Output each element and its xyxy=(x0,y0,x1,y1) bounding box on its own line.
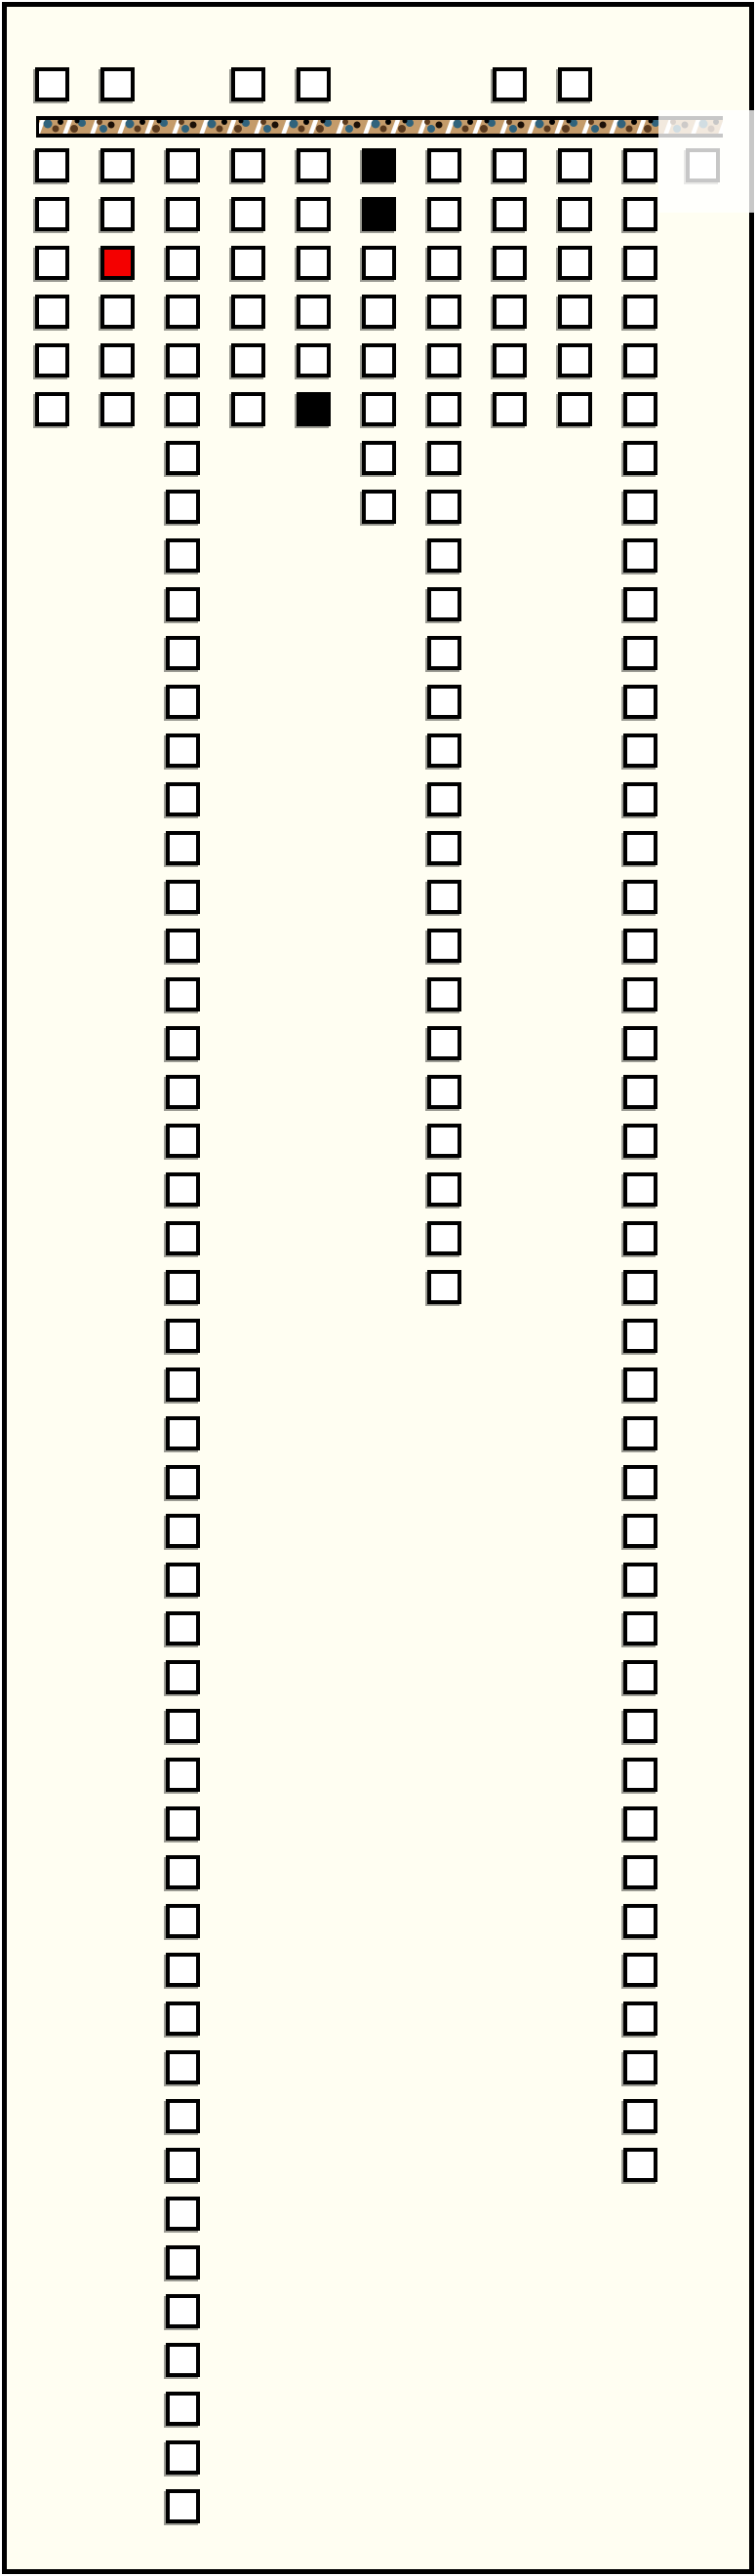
checkbox-cell[interactable] xyxy=(623,636,657,670)
checkbox-cell[interactable] xyxy=(623,538,657,573)
checkbox-cell[interactable] xyxy=(623,490,657,524)
checkbox-cell[interactable] xyxy=(623,1904,657,1938)
checkbox-cell[interactable] xyxy=(166,1416,200,1450)
checkbox-cell[interactable] xyxy=(166,636,200,670)
checkbox-cell[interactable] xyxy=(427,490,461,524)
checkbox-cell[interactable] xyxy=(623,2001,657,2036)
checkbox-cell[interactable] xyxy=(166,197,200,231)
checkbox-cell[interactable] xyxy=(166,782,200,816)
checkbox-cell[interactable] xyxy=(166,685,200,719)
checkbox-cell[interactable] xyxy=(623,1026,657,1060)
checkbox-cell[interactable] xyxy=(166,343,200,377)
checkbox-cell[interactable] xyxy=(427,197,461,231)
checkbox-cell[interactable] xyxy=(35,295,69,329)
checkbox-cell[interactable] xyxy=(427,636,461,670)
checkbox-cell[interactable] xyxy=(558,197,592,231)
checkbox-cell[interactable] xyxy=(623,929,657,963)
checkbox-cell[interactable] xyxy=(623,1611,657,1645)
checkbox-cell[interactable] xyxy=(427,782,461,816)
checkbox-cell[interactable] xyxy=(623,1855,657,1889)
checkbox-cell[interactable] xyxy=(493,392,527,426)
checkbox-cell[interactable] xyxy=(166,2099,200,2133)
checkbox-cell[interactable] xyxy=(231,295,265,329)
checkbox-cell[interactable] xyxy=(623,1953,657,1987)
checkbox-cell[interactable] xyxy=(427,685,461,719)
checkbox-cell[interactable] xyxy=(35,343,69,377)
checkbox-cell[interactable] xyxy=(623,197,657,231)
checkbox-cell[interactable] xyxy=(166,2392,200,2426)
checkbox-cell[interactable] xyxy=(166,1172,200,1207)
checkbox-cell[interactable] xyxy=(166,1611,200,1645)
checkbox-cell[interactable] xyxy=(427,441,461,475)
checkbox-cell[interactable] xyxy=(623,343,657,377)
checkbox-cell[interactable] xyxy=(231,392,265,426)
checkbox-cell[interactable] xyxy=(623,1221,657,1255)
checkbox-cell[interactable] xyxy=(623,1416,657,1450)
checkbox-cell[interactable] xyxy=(166,880,200,914)
checkbox-cell[interactable] xyxy=(623,1319,657,1353)
checkbox-cell[interactable] xyxy=(166,2440,200,2475)
checkbox-cell-filled[interactable] xyxy=(362,148,396,182)
checkbox-cell[interactable] xyxy=(623,246,657,280)
checkbox-cell[interactable] xyxy=(427,733,461,768)
checkbox-cell[interactable] xyxy=(166,490,200,524)
checkbox-cell[interactable] xyxy=(493,343,527,377)
checkbox-cell[interactable] xyxy=(493,197,527,231)
checkbox-cell[interactable] xyxy=(166,2294,200,2328)
checkbox-cell[interactable] xyxy=(100,197,135,231)
checkbox-cell[interactable] xyxy=(100,343,135,377)
checkbox-cell[interactable] xyxy=(166,1660,200,1694)
checkbox-cell[interactable] xyxy=(166,1855,200,1889)
checkbox-cell[interactable] xyxy=(362,392,396,426)
checkbox-cell[interactable] xyxy=(427,1221,461,1255)
checkbox-cell[interactable] xyxy=(35,148,69,182)
checkbox-cell[interactable] xyxy=(623,1758,657,1792)
checkbox-cell[interactable] xyxy=(231,246,265,280)
checkbox-cell[interactable] xyxy=(166,2245,200,2279)
checkbox-cell[interactable] xyxy=(623,295,657,329)
checkbox-cell[interactable] xyxy=(231,197,265,231)
checkbox-cell[interactable] xyxy=(166,2343,200,2377)
checkbox-cell[interactable] xyxy=(166,1319,200,1353)
checkbox-cell[interactable] xyxy=(623,1806,657,1841)
checkbox-cell[interactable] xyxy=(362,246,396,280)
checkbox-cell[interactable] xyxy=(493,67,527,101)
checkbox-cell[interactable] xyxy=(166,1124,200,1158)
checkbox-cell[interactable] xyxy=(623,880,657,914)
checkbox-cell[interactable] xyxy=(100,148,135,182)
checkbox-cell[interactable] xyxy=(297,148,331,182)
checkbox-cell[interactable] xyxy=(623,782,657,816)
checkbox-cell-filled[interactable] xyxy=(362,197,396,231)
checkbox-cell[interactable] xyxy=(362,343,396,377)
checkbox-cell[interactable] xyxy=(166,831,200,865)
checkbox-cell[interactable] xyxy=(231,343,265,377)
checkbox-cell[interactable] xyxy=(427,1124,461,1158)
checkbox-cell[interactable] xyxy=(166,1514,200,1548)
checkbox-cell[interactable] xyxy=(35,392,69,426)
checkbox-cell[interactable] xyxy=(558,67,592,101)
checkbox-cell[interactable] xyxy=(166,977,200,1011)
checkbox-cell[interactable] xyxy=(623,1172,657,1207)
checkbox-cell[interactable] xyxy=(623,2099,657,2133)
checkbox-cell[interactable] xyxy=(297,67,331,101)
checkbox-cell[interactable] xyxy=(166,1758,200,1792)
checkbox-cell[interactable] xyxy=(166,1563,200,1597)
checkbox-cell[interactable] xyxy=(623,392,657,426)
checkbox-cell[interactable] xyxy=(623,1660,657,1694)
checkbox-cell[interactable] xyxy=(166,246,200,280)
checkbox-cell[interactable] xyxy=(427,246,461,280)
checkbox-cell[interactable] xyxy=(623,2148,657,2182)
checkbox-cell[interactable] xyxy=(166,2001,200,2036)
checkbox-cell[interactable] xyxy=(623,733,657,768)
checkbox-cell[interactable] xyxy=(558,343,592,377)
checkbox-cell-filled[interactable] xyxy=(100,246,135,280)
checkbox-cell[interactable] xyxy=(231,148,265,182)
checkbox-cell[interactable] xyxy=(623,1270,657,1304)
checkbox-cell[interactable] xyxy=(166,587,200,621)
checkbox-cell[interactable] xyxy=(362,295,396,329)
checkbox-cell[interactable] xyxy=(558,246,592,280)
checkbox-cell[interactable] xyxy=(166,1367,200,1402)
checkbox-cell[interactable] xyxy=(427,929,461,963)
checkbox-cell[interactable] xyxy=(166,441,200,475)
checkbox-cell[interactable] xyxy=(427,538,461,573)
checkbox-cell[interactable] xyxy=(231,67,265,101)
checkbox-cell[interactable] xyxy=(427,148,461,182)
checkbox-cell[interactable] xyxy=(35,67,69,101)
checkbox-cell[interactable] xyxy=(623,1465,657,1499)
checkbox-cell[interactable] xyxy=(427,587,461,621)
checkbox-cell[interactable] xyxy=(623,1124,657,1158)
checkbox-cell[interactable] xyxy=(623,1563,657,1597)
checkbox-cell[interactable] xyxy=(623,441,657,475)
checkbox-cell[interactable] xyxy=(623,1709,657,1743)
checkbox-cell[interactable] xyxy=(427,392,461,426)
checkbox-cell[interactable] xyxy=(427,977,461,1011)
checkbox-cell[interactable] xyxy=(166,2489,200,2523)
checkbox-cell[interactable] xyxy=(362,441,396,475)
checkbox-cell[interactable] xyxy=(35,197,69,231)
checkbox-cell[interactable] xyxy=(623,2050,657,2084)
checkbox-cell[interactable] xyxy=(362,490,396,524)
checkbox-cell[interactable] xyxy=(166,2050,200,2084)
checkbox-cell[interactable] xyxy=(623,685,657,719)
checkbox-cell[interactable] xyxy=(100,295,135,329)
checkbox-cell[interactable] xyxy=(166,1221,200,1255)
checkbox-cell[interactable] xyxy=(297,343,331,377)
checkbox-cell[interactable] xyxy=(166,733,200,768)
checkbox-cell[interactable] xyxy=(100,67,135,101)
checkbox-cell[interactable] xyxy=(166,295,200,329)
checkbox-cell[interactable] xyxy=(427,880,461,914)
page xyxy=(0,0,756,2576)
checkbox-cell[interactable] xyxy=(166,1026,200,1060)
checkbox-cell[interactable] xyxy=(297,246,331,280)
checkbox-cell[interactable] xyxy=(427,295,461,329)
checkbox-cell[interactable] xyxy=(166,2197,200,2231)
checkbox-cell[interactable] xyxy=(297,197,331,231)
checkbox-cell[interactable] xyxy=(427,1026,461,1060)
checkbox-cell[interactable] xyxy=(493,295,527,329)
checkbox-cell[interactable] xyxy=(493,148,527,182)
checkbox-cell[interactable] xyxy=(166,2148,200,2182)
checkbox-cell[interactable] xyxy=(427,1075,461,1109)
checkbox-cell[interactable] xyxy=(427,1270,461,1304)
checkbox-cell[interactable] xyxy=(166,1953,200,1987)
checkbox-cell[interactable] xyxy=(35,246,69,280)
checkbox-cell[interactable] xyxy=(166,538,200,573)
checkbox-cell[interactable] xyxy=(427,343,461,377)
checkbox-cell[interactable] xyxy=(427,1172,461,1207)
checkbox-cell[interactable] xyxy=(623,1075,657,1109)
checkbox-cell[interactable] xyxy=(623,977,657,1011)
checkbox-cell[interactable] xyxy=(100,392,135,426)
checkbox-cell[interactable] xyxy=(166,1806,200,1841)
checkbox-cell[interactable] xyxy=(297,295,331,329)
checkbox-cell[interactable] xyxy=(558,295,592,329)
checkbox-cell[interactable] xyxy=(166,1465,200,1499)
checkbox-cell[interactable] xyxy=(166,148,200,182)
checkbox-cell[interactable] xyxy=(623,1367,657,1402)
fade-overlay xyxy=(658,110,756,213)
camouflage-divider-strip xyxy=(36,116,723,138)
checkbox-cell[interactable] xyxy=(166,1904,200,1938)
checkbox-cell[interactable] xyxy=(623,1514,657,1548)
checkbox-cell[interactable] xyxy=(166,1270,200,1304)
checkbox-cell[interactable] xyxy=(493,246,527,280)
checkbox-cell[interactable] xyxy=(166,1709,200,1743)
checkbox-cell[interactable] xyxy=(623,148,657,182)
checkbox-cell[interactable] xyxy=(558,392,592,426)
checkbox-cell-filled[interactable] xyxy=(297,392,331,426)
checkbox-cell[interactable] xyxy=(166,929,200,963)
checkbox-cell[interactable] xyxy=(623,831,657,865)
checkbox-cell[interactable] xyxy=(166,392,200,426)
checkbox-cell[interactable] xyxy=(427,831,461,865)
checkbox-cell[interactable] xyxy=(558,148,592,182)
checkbox-cell[interactable] xyxy=(166,1075,200,1109)
checkbox-cell[interactable] xyxy=(623,587,657,621)
